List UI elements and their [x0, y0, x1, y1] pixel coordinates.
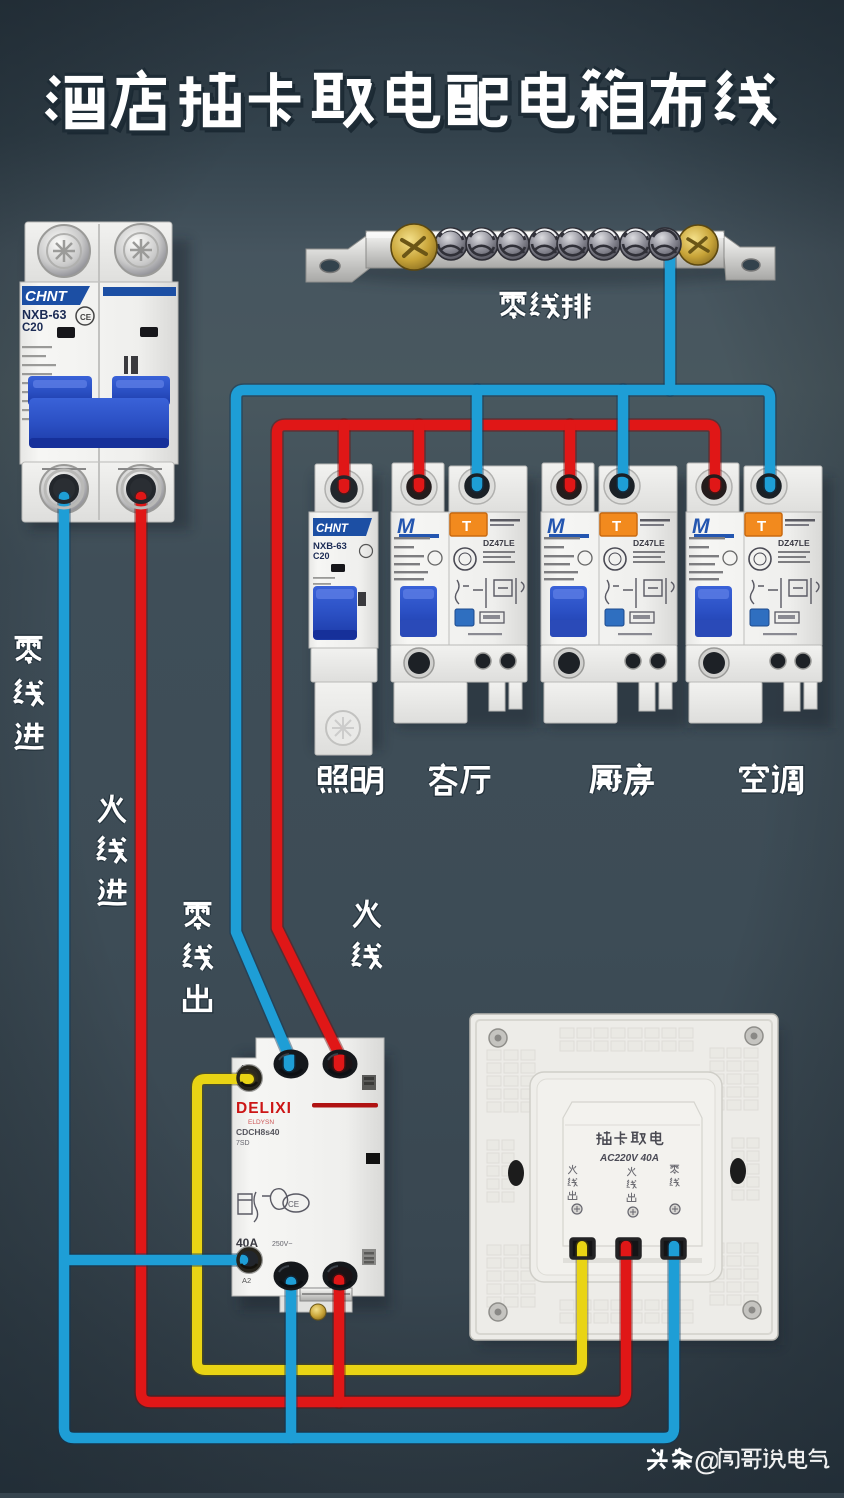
svg-text:DZ47LE: DZ47LE: [778, 538, 810, 548]
svg-text:CE: CE: [288, 1200, 299, 1209]
svg-text:T: T: [612, 518, 621, 535]
svg-text:250V~: 250V~: [272, 1241, 292, 1248]
svg-text:CDCH8s40: CDCH8s40: [236, 1127, 280, 1137]
svg-text:ELDYSN: ELDYSN: [248, 1119, 274, 1126]
svg-text:CHNT: CHNT: [316, 523, 349, 535]
svg-text:T: T: [757, 518, 766, 535]
svg-text:@: @: [694, 1446, 720, 1476]
svg-text:NXB-63: NXB-63: [22, 308, 67, 322]
svg-text:CE: CE: [80, 313, 92, 322]
svg-text:DZ47LE: DZ47LE: [483, 538, 515, 548]
svg-text:AC220V 40A: AC220V 40A: [599, 1153, 659, 1164]
svg-text:CHNT: CHNT: [25, 288, 68, 305]
svg-text:DZ47LE: DZ47LE: [633, 538, 665, 548]
svg-text:DELIXI: DELIXI: [236, 1100, 292, 1117]
svg-text:7SD: 7SD: [236, 1140, 250, 1147]
svg-text:C20: C20: [22, 322, 43, 334]
svg-text:A2: A2: [242, 1276, 251, 1285]
svg-text:C20: C20: [313, 551, 330, 561]
svg-text:T: T: [462, 518, 471, 535]
